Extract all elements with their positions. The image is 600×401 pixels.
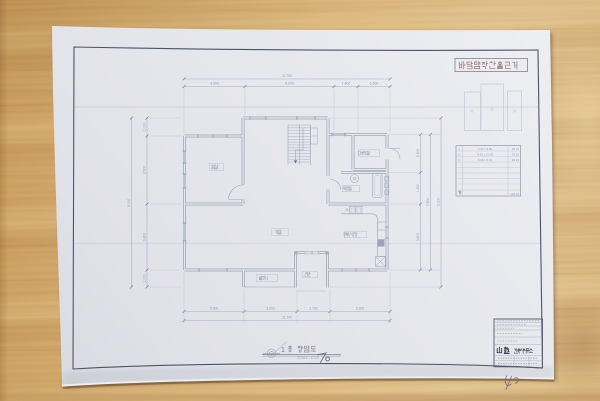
svg-text:2.200: 2.200 bbox=[416, 149, 420, 158]
svg-text:39.33: 39.33 bbox=[512, 158, 520, 162]
svg-text:3.300: 3.300 bbox=[356, 307, 365, 311]
svg-text:11.700: 11.700 bbox=[282, 74, 292, 78]
svg-text:1: 1 bbox=[281, 347, 285, 354]
svg-text:1.700: 1.700 bbox=[309, 307, 318, 311]
svg-text:7.800: 7.800 bbox=[426, 198, 430, 207]
svg-text:6.900: 6.900 bbox=[285, 82, 294, 86]
svg-text:1.800: 1.800 bbox=[416, 184, 420, 193]
svg-text:3.900: 3.900 bbox=[143, 166, 147, 175]
svg-text:3.30 x 10.00: 3.30 x 10.00 bbox=[477, 152, 493, 156]
svg-text:1.000: 1.000 bbox=[143, 123, 147, 132]
svg-text:1.400: 1.400 bbox=[342, 82, 351, 86]
svg-text:29.70: 29.70 bbox=[512, 147, 520, 151]
svg-text:4.800: 4.800 bbox=[210, 82, 219, 86]
svg-text:1.000: 1.000 bbox=[143, 274, 147, 283]
svg-text:6.90 x 5.70: 6.90 x 5.70 bbox=[478, 158, 493, 162]
svg-text:4.500: 4.500 bbox=[210, 307, 219, 311]
svg-text:3.30 x 9.00: 3.30 x 9.00 bbox=[478, 147, 493, 151]
svg-text:102.03: 102.03 bbox=[510, 192, 519, 196]
svg-text:3.000: 3.000 bbox=[266, 307, 275, 311]
svg-text:9.000: 9.000 bbox=[127, 199, 131, 208]
svg-text:11.700: 11.700 bbox=[282, 316, 292, 320]
svg-text:9.000: 9.000 bbox=[437, 198, 441, 207]
svg-text:1.600: 1.600 bbox=[370, 82, 379, 86]
svg-text:3.800: 3.800 bbox=[143, 233, 147, 242]
svg-text:SCALE : 1/100: SCALE : 1/100 bbox=[297, 356, 319, 360]
svg-text:3.800: 3.800 bbox=[416, 233, 420, 242]
svg-text:33.00: 33.00 bbox=[512, 152, 520, 156]
